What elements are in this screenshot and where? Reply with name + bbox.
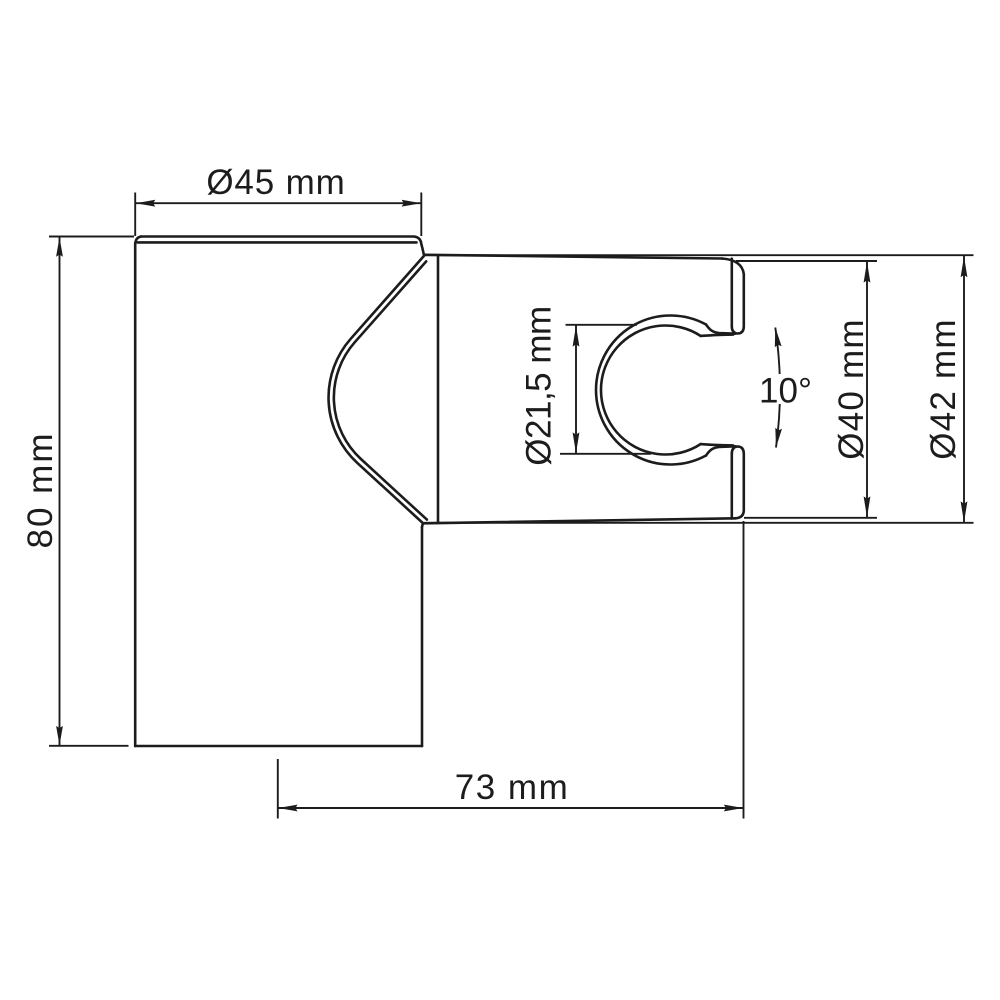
svg-text:Ø45 mm: Ø45 mm	[206, 163, 345, 202]
svg-text:Ø40 mm: Ø40 mm	[832, 318, 871, 459]
svg-text:Ø21,5 mm: Ø21,5 mm	[520, 306, 559, 465]
svg-text:Ø42 mm: Ø42 mm	[924, 318, 963, 459]
svg-text:10°: 10°	[759, 372, 812, 411]
svg-text:80 mm: 80 mm	[21, 432, 60, 549]
svg-text:73 mm: 73 mm	[455, 768, 569, 807]
